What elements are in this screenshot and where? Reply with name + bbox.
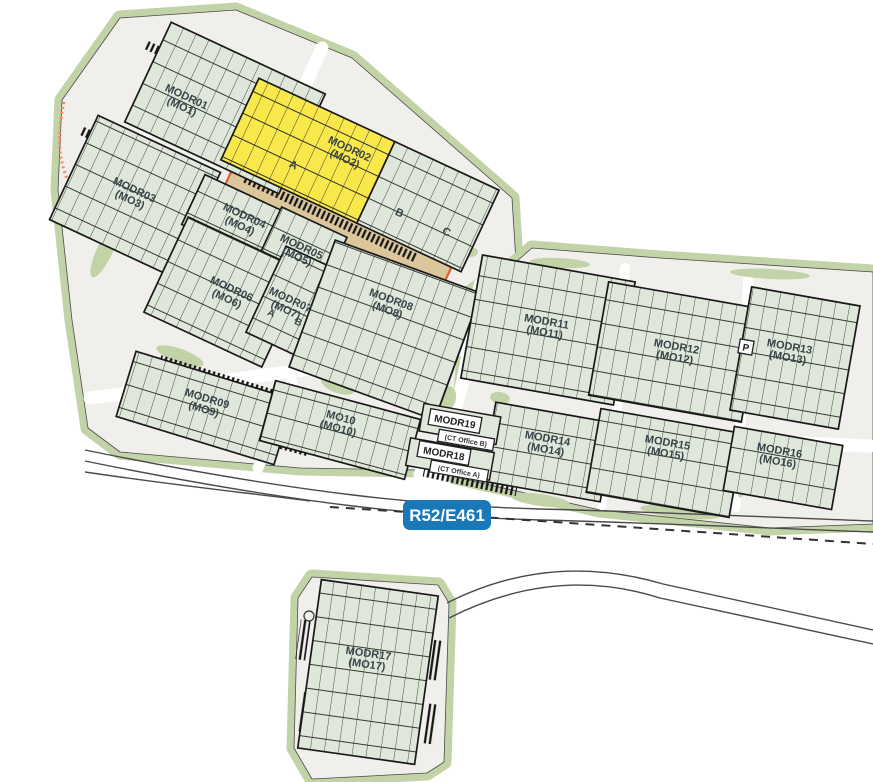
road-sign-label: R52/E461 [409, 506, 485, 525]
site-plan-page: MODR01(MO1) MODR02(MO2) MODR03(MO3) MODR… [0, 0, 873, 782]
modr17-tank [304, 611, 314, 621]
parking-badge: P [738, 339, 754, 355]
building-modr17[interactable] [298, 580, 439, 765]
road-sign: R52/E461 [403, 500, 491, 530]
site-plan-svg: MODR01(MO1) MODR02(MO2) MODR03(MO3) MODR… [0, 0, 873, 782]
